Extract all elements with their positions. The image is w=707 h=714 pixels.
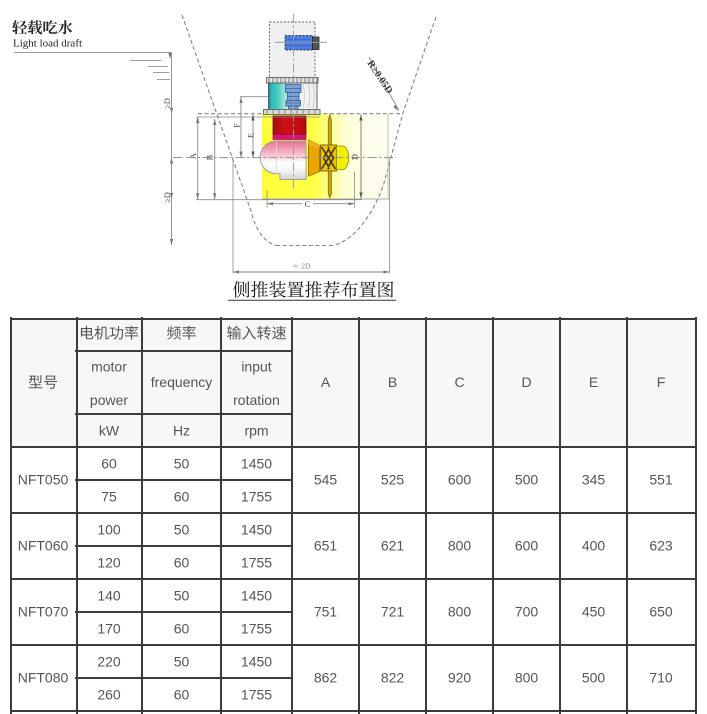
svg-text:60: 60 [174, 554, 190, 570]
svg-text:kW: kW [99, 423, 120, 439]
svg-text:1755: 1755 [241, 620, 272, 636]
svg-text:Hz: Hz [173, 423, 190, 439]
svg-text:800: 800 [448, 604, 472, 620]
svg-text:710: 710 [649, 670, 673, 686]
svg-text:Light load draft: Light load draft [13, 38, 82, 50]
svg-text:140: 140 [97, 587, 121, 603]
svg-text:≈ 2D: ≈ 2D [293, 262, 311, 271]
svg-text:1450: 1450 [241, 455, 272, 471]
svg-text:≥D: ≥D [162, 98, 172, 109]
svg-text:721: 721 [381, 604, 405, 620]
svg-text:60: 60 [174, 488, 190, 504]
svg-text:rotation: rotation [233, 392, 280, 408]
svg-text:50: 50 [174, 653, 190, 669]
svg-text:500: 500 [582, 670, 606, 686]
svg-text:800: 800 [448, 538, 472, 554]
svg-text:621: 621 [381, 538, 405, 554]
svg-text:862: 862 [314, 670, 338, 686]
svg-text:1450: 1450 [241, 653, 272, 669]
svg-text:≥D: ≥D [162, 192, 172, 203]
svg-text:75: 75 [101, 488, 117, 504]
svg-text:60: 60 [174, 620, 190, 636]
svg-text:E: E [589, 374, 598, 390]
svg-text:100: 100 [97, 521, 121, 537]
svg-text:D: D [521, 374, 531, 390]
svg-text:650: 650 [649, 604, 673, 620]
svg-text:F: F [232, 123, 242, 128]
svg-text:F: F [657, 374, 666, 390]
svg-text:C: C [454, 374, 464, 390]
svg-text:C: C [305, 199, 311, 209]
svg-text:120: 120 [97, 554, 121, 570]
svg-text:E: E [246, 133, 256, 138]
svg-text:NFT070: NFT070 [18, 604, 69, 620]
svg-text:R≥0.05D: R≥0.05D [365, 59, 395, 96]
svg-text:500: 500 [515, 472, 539, 488]
svg-text:600: 600 [515, 538, 539, 554]
svg-text:700: 700 [515, 604, 539, 620]
svg-text:345: 345 [582, 472, 606, 488]
svg-text:1755: 1755 [241, 686, 272, 702]
svg-text:motor: motor [91, 359, 127, 375]
svg-text:1755: 1755 [241, 488, 272, 504]
svg-text:545: 545 [314, 472, 338, 488]
svg-text:NFT080: NFT080 [18, 670, 69, 686]
svg-text:rpm: rpm [244, 423, 268, 439]
svg-text:NFT050: NFT050 [18, 472, 69, 488]
svg-text:D: D [350, 154, 360, 160]
svg-text:525: 525 [381, 472, 405, 488]
svg-text:600: 600 [448, 472, 472, 488]
svg-text:822: 822 [381, 670, 405, 686]
svg-text:260: 260 [97, 686, 121, 702]
svg-text:B: B [205, 154, 215, 160]
svg-text:NFT060: NFT060 [18, 538, 69, 554]
svg-text:frequency: frequency [151, 374, 212, 390]
svg-text:1450: 1450 [241, 521, 272, 537]
svg-text:B: B [388, 374, 397, 390]
svg-text:A: A [188, 152, 198, 159]
svg-text:800: 800 [515, 670, 539, 686]
svg-text:651: 651 [314, 538, 338, 554]
svg-text:50: 50 [174, 587, 190, 603]
svg-text:1755: 1755 [241, 554, 272, 570]
svg-text:50: 50 [174, 455, 190, 471]
svg-text:input: input [241, 359, 271, 375]
svg-text:50: 50 [174, 521, 190, 537]
svg-text:A: A [321, 374, 331, 390]
svg-text:60: 60 [174, 686, 190, 702]
svg-text:1450: 1450 [241, 587, 272, 603]
svg-text:power: power [90, 392, 128, 408]
svg-text:170: 170 [97, 620, 121, 636]
svg-text:551: 551 [649, 472, 673, 488]
svg-text:220: 220 [97, 653, 121, 669]
svg-text:920: 920 [448, 670, 472, 686]
svg-text:751: 751 [314, 604, 338, 620]
svg-text:450: 450 [582, 604, 606, 620]
svg-text:60: 60 [101, 455, 117, 471]
svg-text:623: 623 [649, 538, 673, 554]
svg-text:400: 400 [582, 538, 606, 554]
